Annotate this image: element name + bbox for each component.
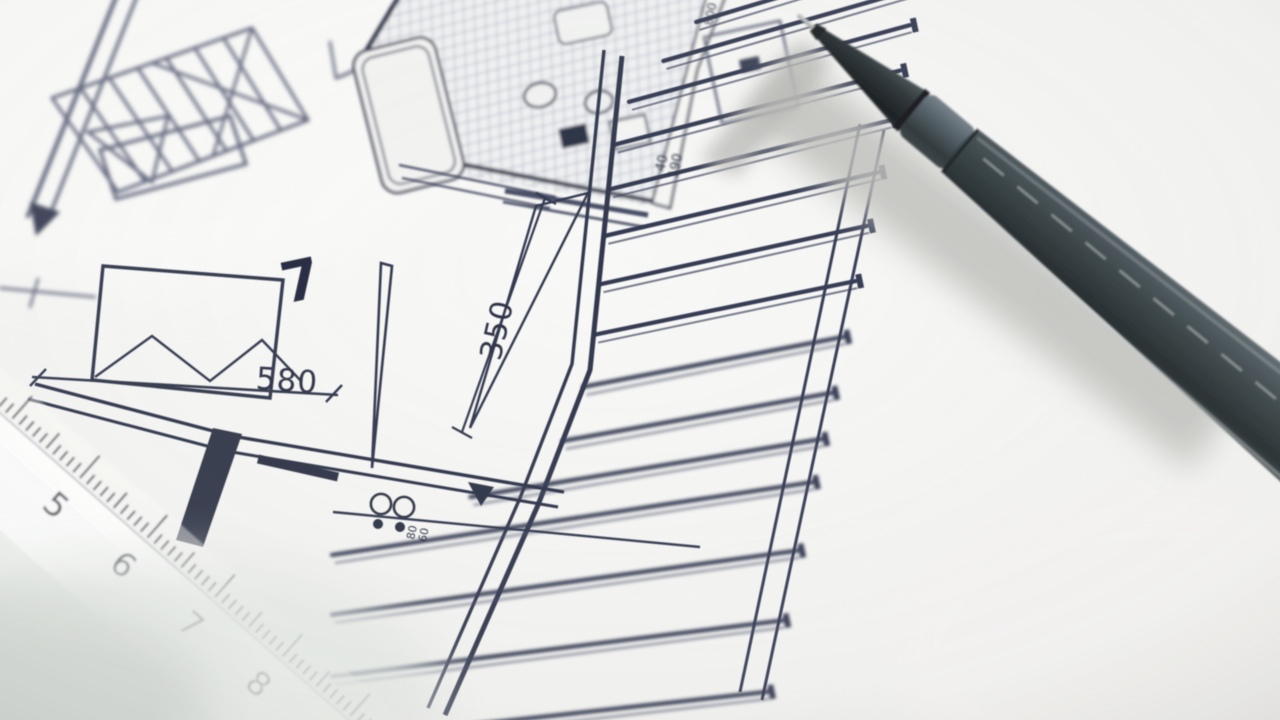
- vignette-overlay: [0, 0, 1280, 720]
- scene-canvas: 580 7 350 80 60: [0, 0, 1280, 720]
- photo-of-floor-plan: 580 7 350 80 60: [0, 0, 1280, 720]
